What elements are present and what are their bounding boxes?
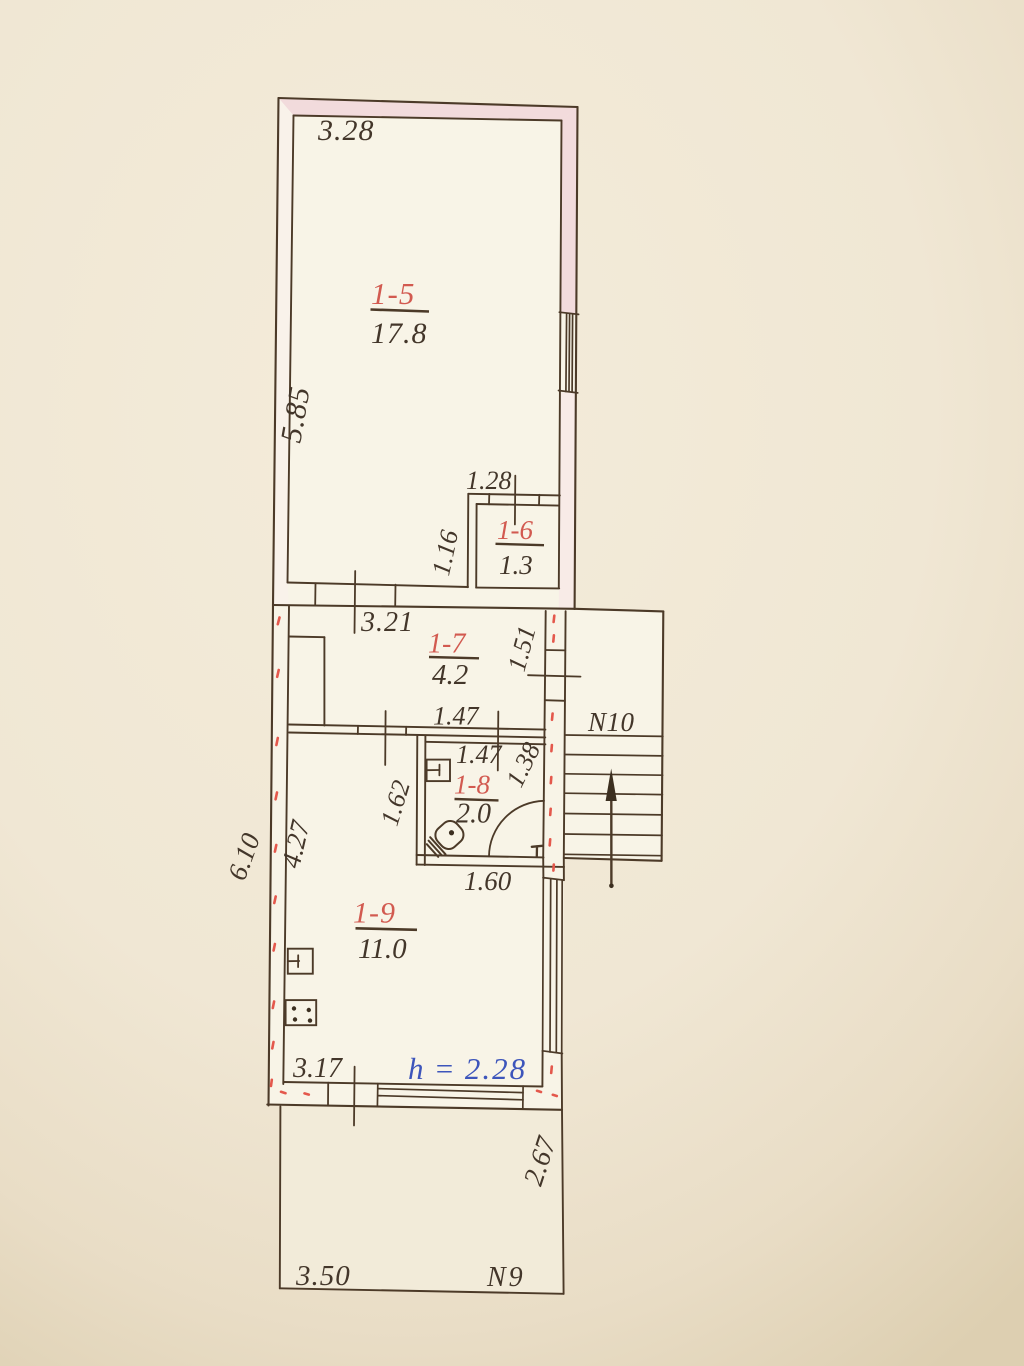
svg-text:3.50: 3.50 [295,1260,351,1292]
svg-text:3.28: 3.28 [317,114,375,147]
svg-text:1-8: 1-8 [454,770,490,800]
svg-text:1-5: 1-5 [371,276,415,311]
svg-text:2.0: 2.0 [456,799,491,830]
svg-text:17.8: 17.8 [371,317,428,350]
svg-text:11.0: 11.0 [358,933,407,965]
svg-text:N9: N9 [486,1262,526,1293]
svg-text:N10: N10 [587,707,635,737]
svg-text:4.2: 4.2 [432,659,468,691]
svg-text:1.28: 1.28 [466,466,512,495]
svg-text:1.60: 1.60 [464,866,512,896]
svg-text:1.47: 1.47 [433,702,480,731]
svg-text:3.21: 3.21 [360,607,414,638]
svg-text:1.47: 1.47 [456,740,503,769]
svg-text:1-9: 1-9 [353,897,396,930]
svg-text:3.17: 3.17 [292,1053,343,1084]
svg-text:1-7: 1-7 [428,629,466,660]
svg-text:6.10: 6.10 [222,829,267,884]
svg-text:1-6: 1-6 [497,515,533,545]
svg-text:h = 2.28: h = 2.28 [408,1051,527,1086]
svg-text:1.3: 1.3 [499,550,533,580]
